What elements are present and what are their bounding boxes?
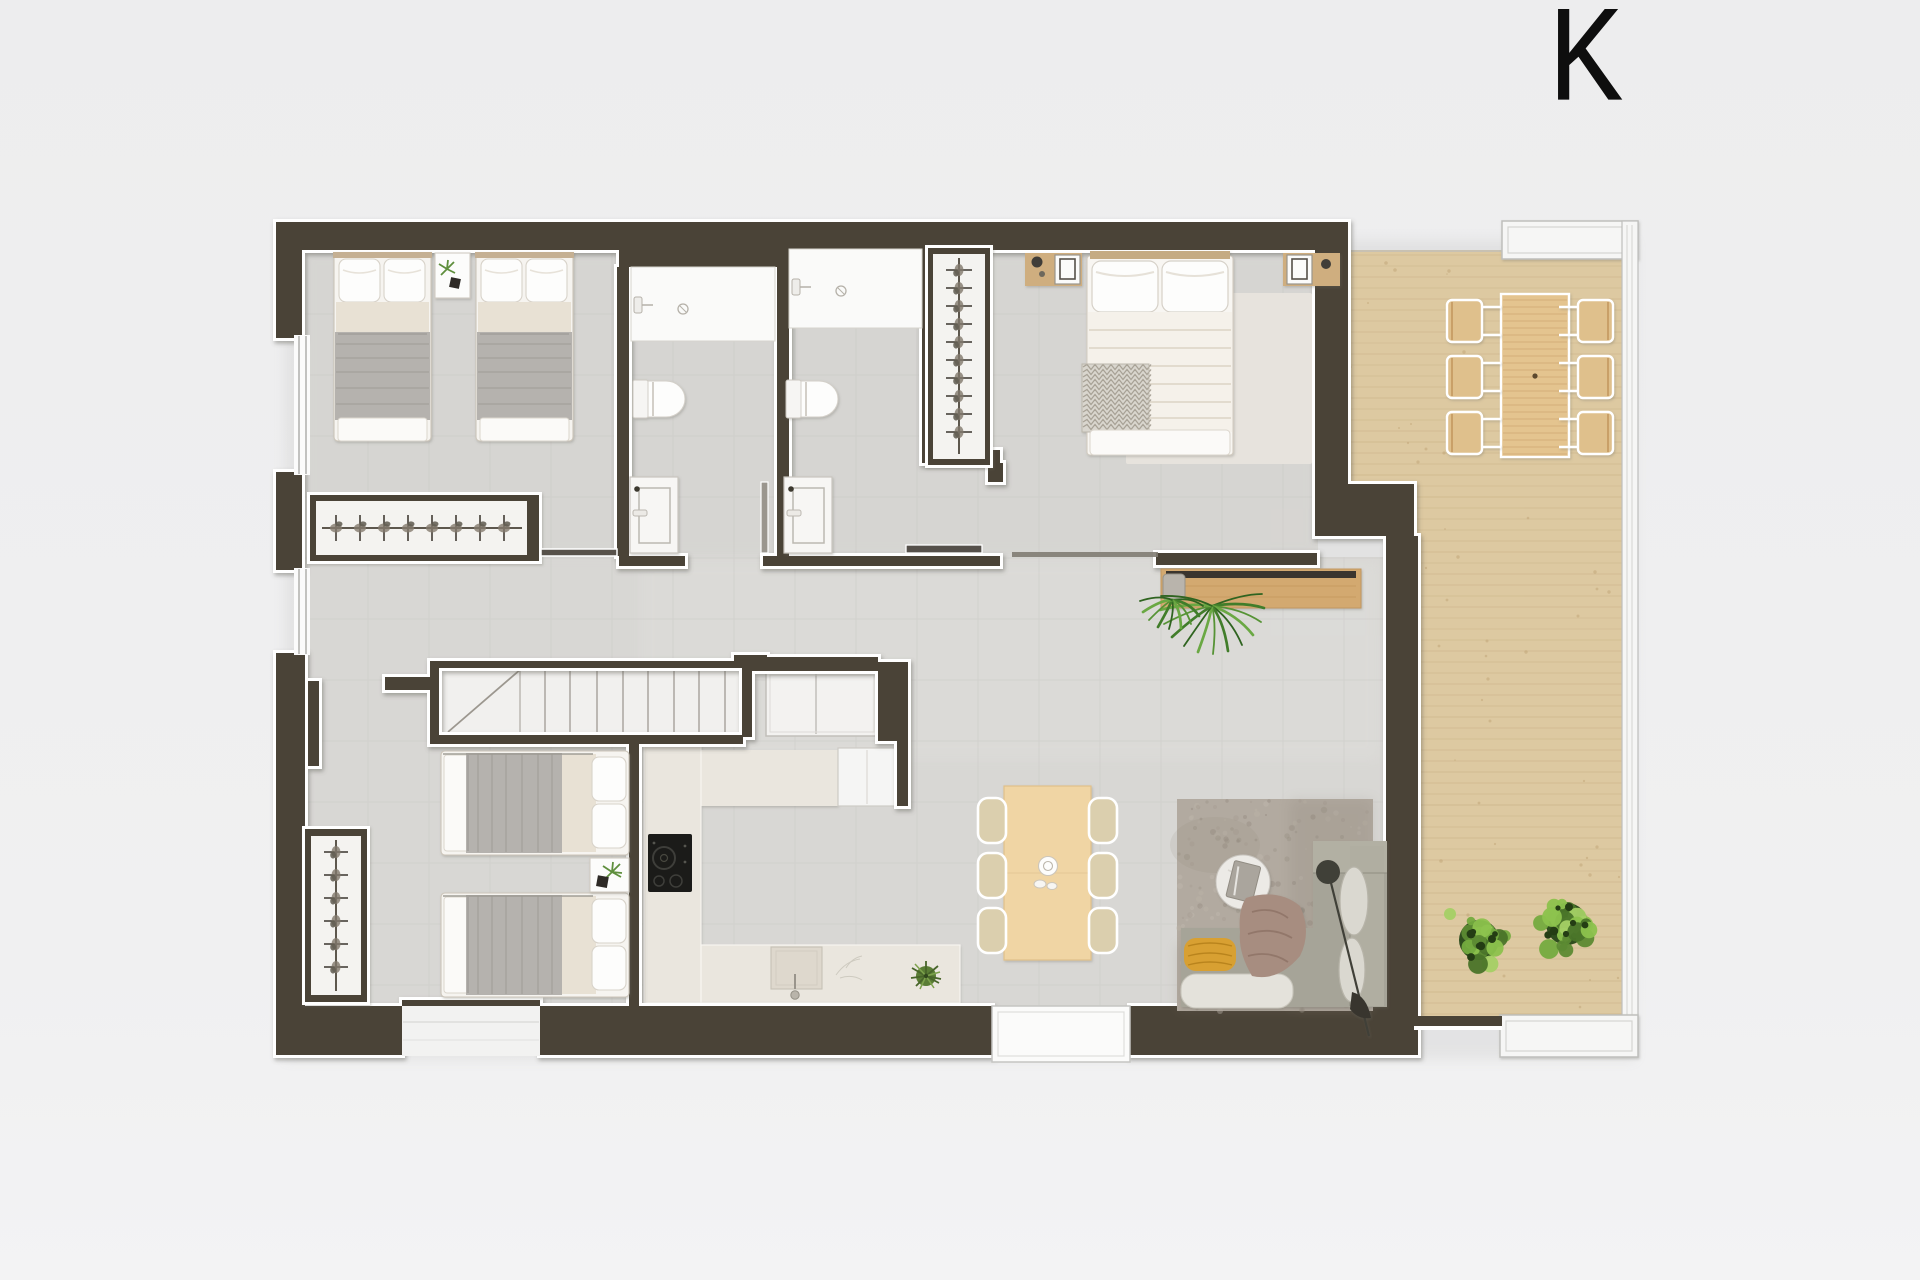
svg-text:K: K [1550,0,1623,127]
